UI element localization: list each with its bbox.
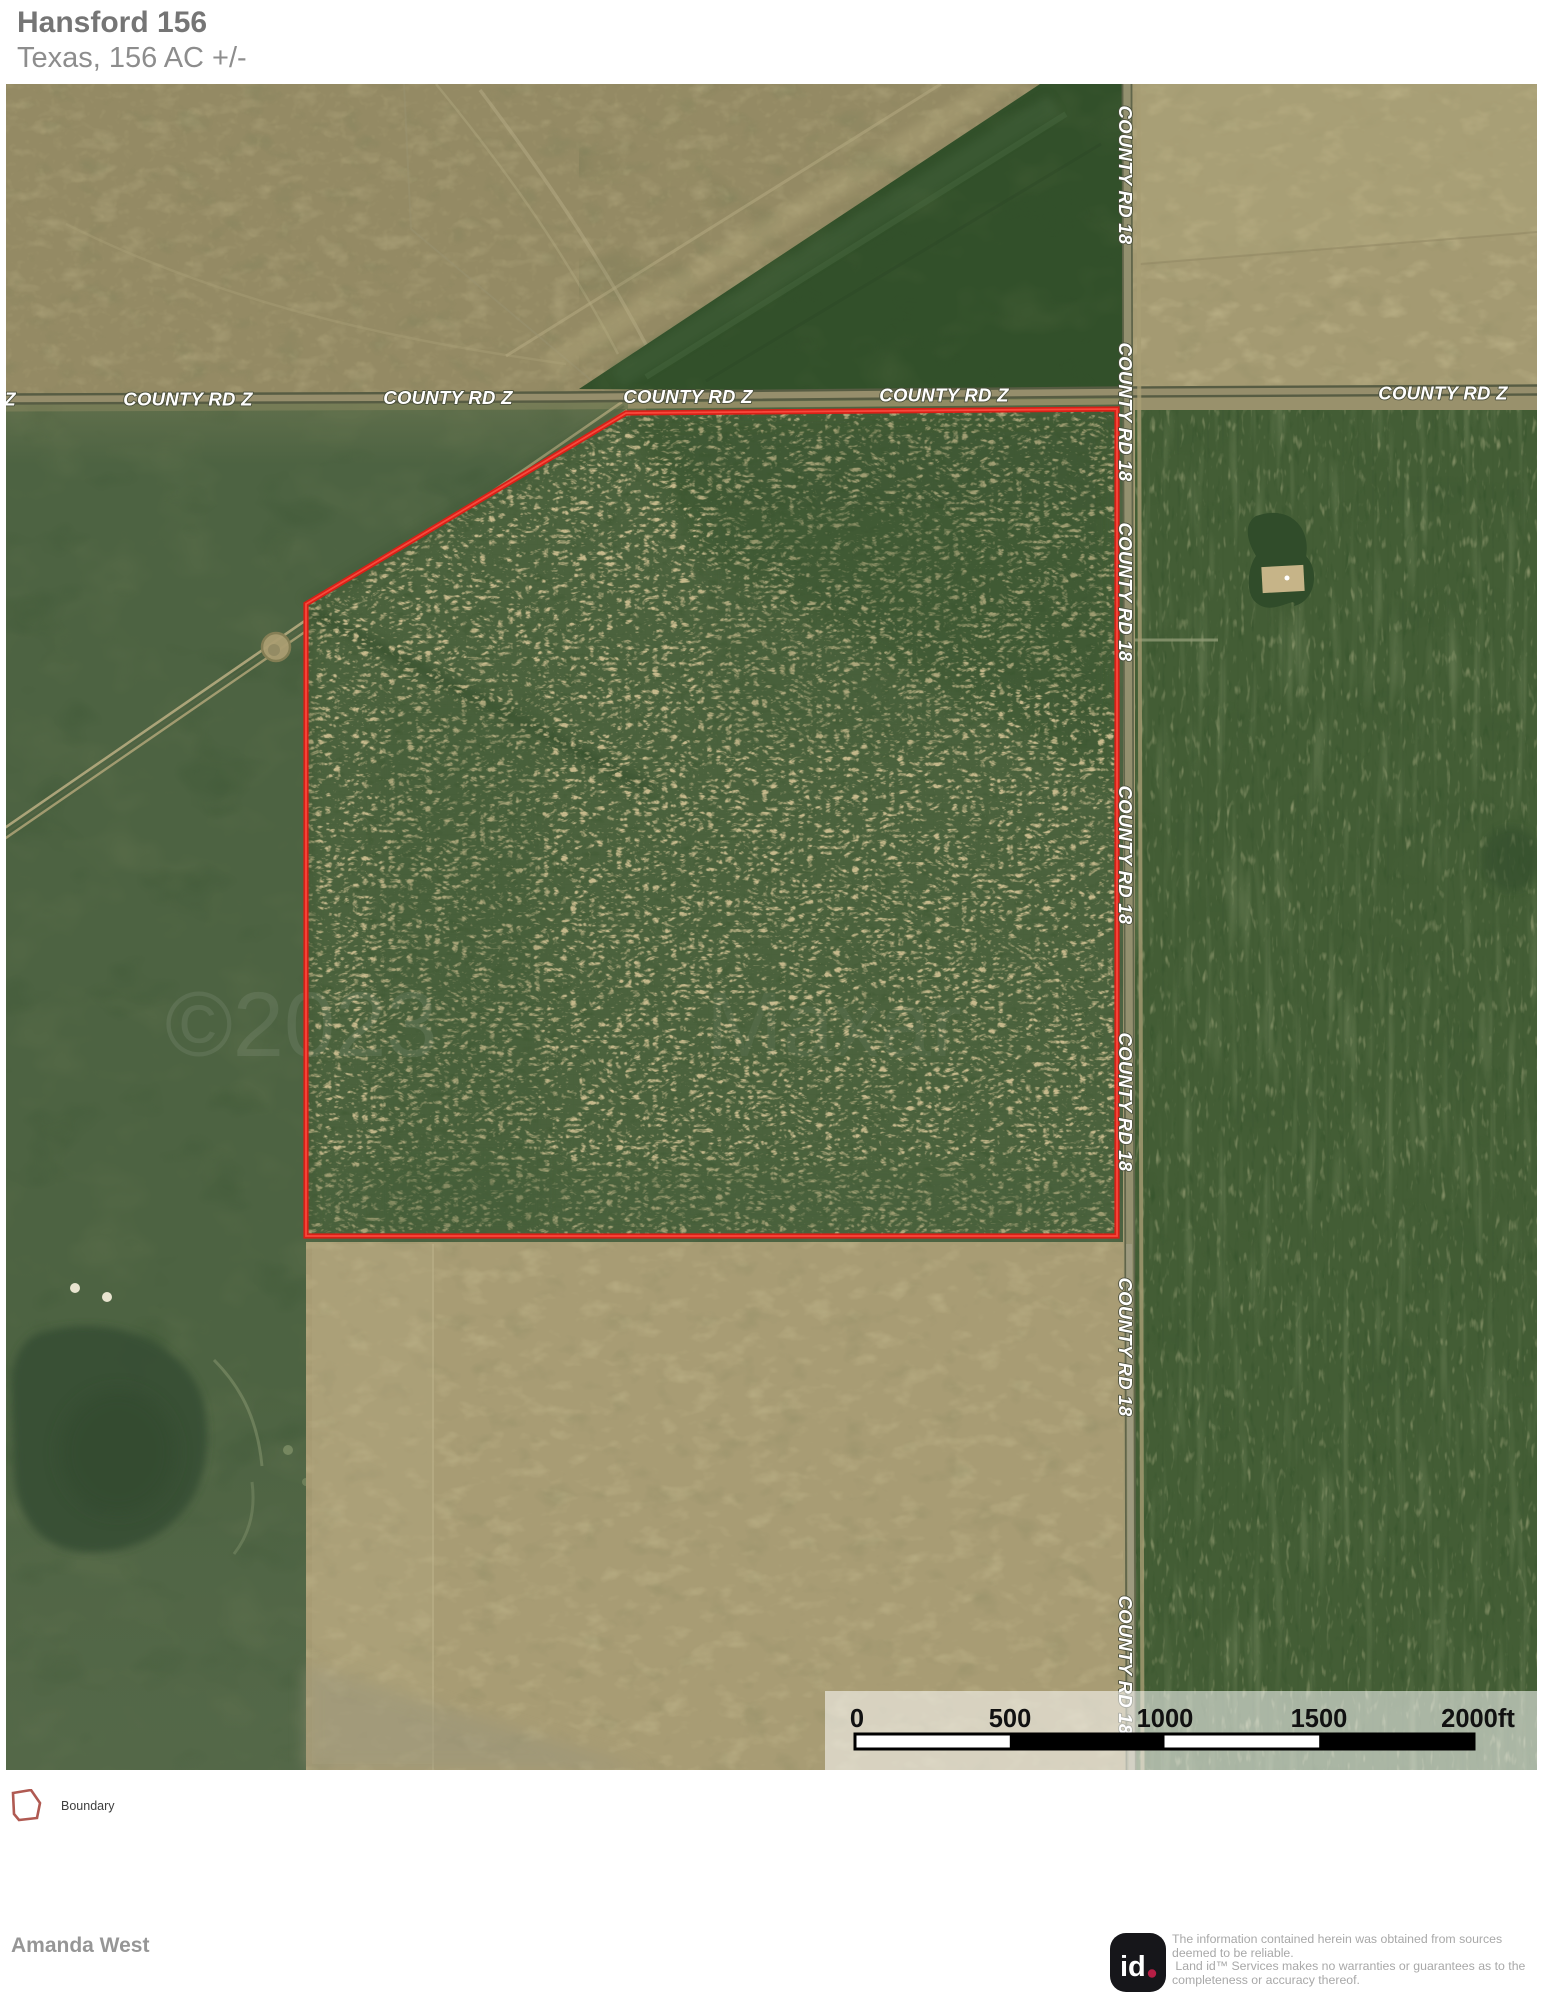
svg-text:Z: Z [6,389,16,410]
svg-text:COUNTY RD 18: COUNTY RD 18 [1115,1278,1136,1417]
svg-text:COUNTY RD 18: COUNTY RD 18 [1115,786,1136,925]
svg-text:COUNTY RD Z: COUNTY RD Z [623,386,753,407]
svg-text:0: 0 [850,1705,864,1733]
svg-text:COUNTY RD 18: COUNTY RD 18 [1115,1033,1136,1172]
svg-text:Maxar: Maxar [706,974,962,1076]
svg-text:COUNTY RD 18: COUNTY RD 18 [1115,523,1136,662]
svg-text:COUNTY RD Z: COUNTY RD Z [1378,383,1508,404]
svg-text:1000: 1000 [1137,1705,1194,1733]
svg-text:COUNTY RD 18: COUNTY RD 18 [1115,343,1136,482]
svg-text:COUNTY RD Z: COUNTY RD Z [879,385,1009,406]
svg-text:id: id [1120,1951,1146,1983]
svg-text:COUNTY RD Z: COUNTY RD Z [383,387,513,408]
svg-text:COUNTY RD Z: COUNTY RD Z [123,389,253,410]
svg-text:COUNTY RD 18: COUNTY RD 18 [1115,106,1136,245]
svg-text:©2023: ©2023 [165,974,437,1076]
svg-text:2000ft: 2000ft [1441,1705,1515,1733]
svg-text:500: 500 [989,1705,1032,1733]
svg-text:1500: 1500 [1291,1705,1348,1733]
